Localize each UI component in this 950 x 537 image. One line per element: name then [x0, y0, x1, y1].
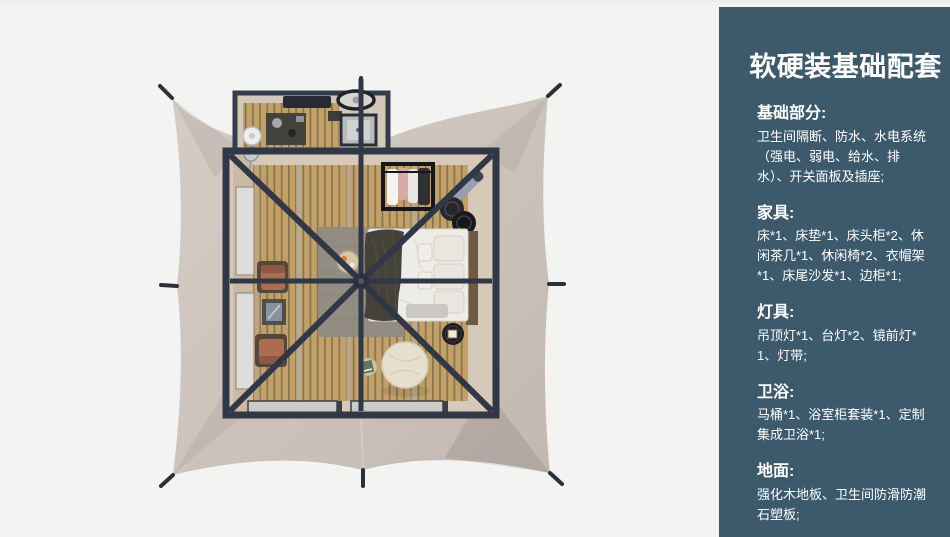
section-heading: 卫浴: — [757, 382, 927, 404]
chair-side-table — [262, 299, 286, 325]
section-lighting: 灯具: 吊顶灯*1、台灯*2、镜前灯*1、灯带; — [757, 302, 927, 365]
slide: 软硬装基础配套 基础部分: 卫生间隔断、防水、水电系统（强电、弱电、给水、排水）… — [0, 0, 950, 534]
section-flooring: 地面: 强化木地板、卫生间防滑防潮石塑板; — [757, 461, 927, 524]
section-body: 吊顶灯*1、台灯*2、镜前灯*1、灯带; — [757, 326, 927, 366]
center-hub — [353, 273, 369, 289]
guy-line — [161, 285, 177, 286]
section-body: 马桶*1、浴室柜套装*1、定制集成卫浴*1; — [757, 405, 927, 445]
bathroom-annex — [235, 91, 388, 153]
section-basics: 基础部分: 卫生间隔断、防水、水电系统（强电、弱电、给水、排水）、开关面板及插座… — [757, 103, 927, 186]
window-panel — [236, 293, 254, 389]
bed — [364, 229, 478, 325]
section-heading: 地面: — [757, 461, 927, 483]
foot-blanket — [406, 304, 448, 318]
spec-sidebar: 软硬装基础配套 基础部分: 卫生间隔断、防水、水电系统（强电、弱电、给水、排水）… — [719, 7, 950, 537]
window-panel — [236, 187, 254, 275]
section-body: 卫生间隔断、防水、水电系统（强电、弱电、给水、排水）、开关面板及插座; — [757, 127, 927, 187]
pouf-ottoman — [382, 342, 430, 397]
sidebar-title: 软硬装基础配套 — [743, 51, 948, 83]
section-heading: 灯具: — [757, 302, 927, 324]
section-heading: 家具: — [757, 203, 927, 225]
bathroom-mirror — [283, 96, 331, 108]
section-body: 床*1、床垫*1、床头柜*2、休闲茶几*1、休闲椅*2、衣帽架*1、床尾沙发*1… — [757, 226, 927, 286]
section-furniture: 家具: 床*1、床垫*1、床头柜*2、休闲茶几*1、休闲椅*2、衣帽架*1、床尾… — [757, 203, 927, 286]
tray-table — [442, 323, 464, 345]
section-body: 强化木地板、卫生间防滑防潮石塑板; — [757, 485, 927, 525]
guy-line — [548, 85, 560, 96]
lounge-chair — [257, 261, 288, 293]
guy-line — [550, 473, 562, 484]
section-heading: 基础部分: — [757, 103, 927, 125]
guy-line — [160, 86, 172, 98]
section-bathroom: 卫浴: 马桶*1、浴室柜套装*1、定制集成卫浴*1; — [757, 382, 927, 445]
tent-floorplan-render — [0, 3, 719, 534]
guy-line — [161, 475, 173, 486]
